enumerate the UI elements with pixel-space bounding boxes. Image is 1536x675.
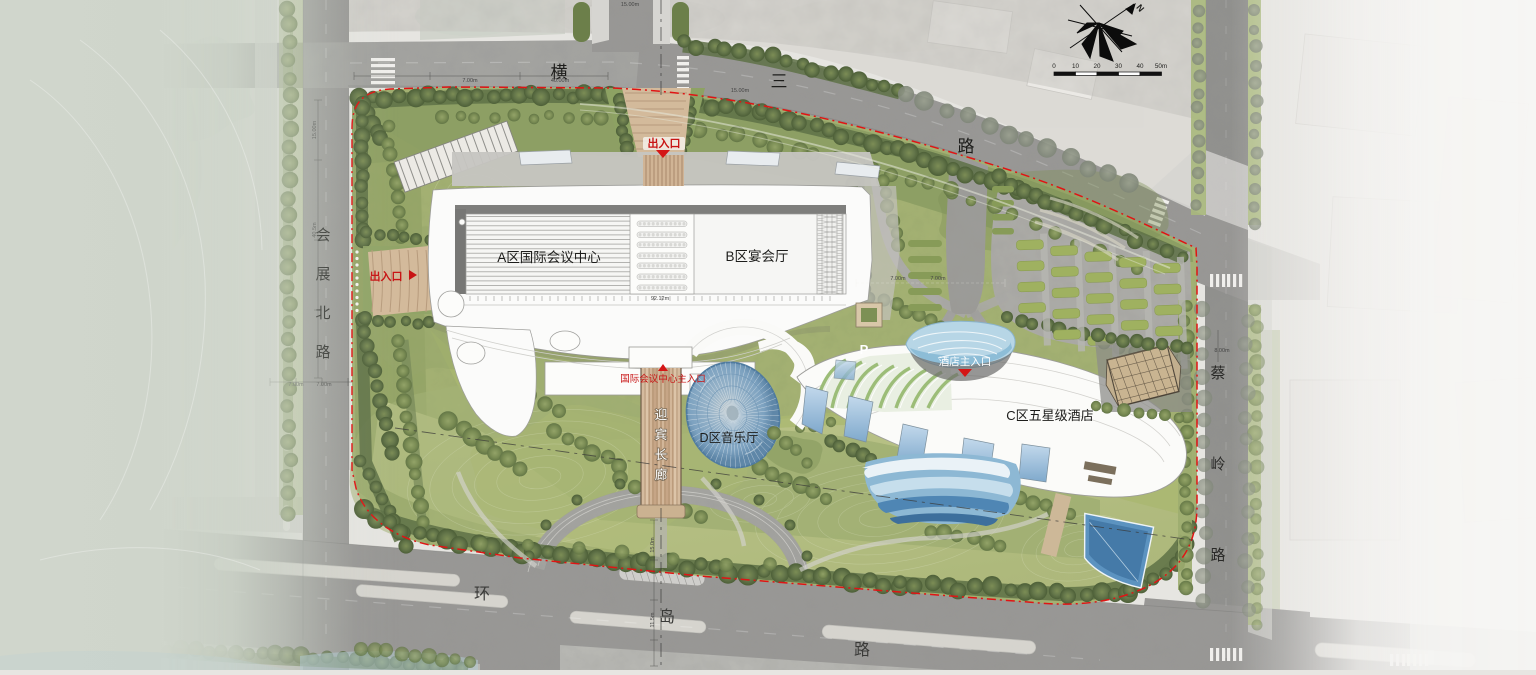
svg-text:蔡: 蔡 xyxy=(1210,365,1225,382)
svg-text:长: 长 xyxy=(655,448,668,462)
svg-text:迎: 迎 xyxy=(655,408,668,422)
svg-text:B区宴会厅: B区宴会厅 xyxy=(725,248,788,264)
svg-text:岛: 岛 xyxy=(659,608,675,626)
svg-text:50m: 50m xyxy=(1155,63,1167,70)
svg-text:15.00m: 15.00m xyxy=(621,2,640,8)
svg-text:8.00m: 8.00m xyxy=(1214,348,1230,354)
svg-text:路: 路 xyxy=(1210,547,1225,564)
svg-text:岭: 岭 xyxy=(1210,456,1225,473)
svg-text:40: 40 xyxy=(1136,63,1144,70)
svg-text:D区音乐厅: D区音乐厅 xyxy=(699,430,758,445)
svg-text:15.0m: 15.0m xyxy=(650,537,656,553)
svg-text:国际会议中心主入口: 国际会议中心主入口 xyxy=(620,373,706,385)
svg-text:15.00m: 15.00m xyxy=(731,88,750,94)
svg-text:出入口: 出入口 xyxy=(648,136,681,150)
svg-text:30: 30 xyxy=(1115,63,1123,70)
svg-text:C区五星级酒店: C区五星级酒店 xyxy=(1006,408,1093,423)
svg-text:P: P xyxy=(860,342,869,357)
svg-text:20: 20 xyxy=(1093,63,1101,70)
svg-text:7.00m: 7.00m xyxy=(930,276,946,282)
svg-text:酒店主入口: 酒店主入口 xyxy=(939,355,992,368)
svg-text:10: 10 xyxy=(1072,63,1080,70)
svg-text:7.00m: 7.00m xyxy=(890,276,906,282)
svg-text:环: 环 xyxy=(474,586,490,603)
svg-text:40.00m: 40.00m xyxy=(551,78,570,84)
svg-text:92.12m: 92.12m xyxy=(651,296,670,302)
svg-text:0: 0 xyxy=(1052,63,1056,70)
svg-text:廊: 廊 xyxy=(655,467,668,482)
svg-text:7.00m: 7.00m xyxy=(462,78,478,84)
svg-text:宾: 宾 xyxy=(655,427,668,442)
svg-text:路: 路 xyxy=(958,137,975,156)
svg-text:11.5m: 11.5m xyxy=(650,612,656,627)
svg-text:A区国际会议中心: A区国际会议中心 xyxy=(497,250,601,265)
svg-text:路: 路 xyxy=(854,641,870,659)
svg-text:三: 三 xyxy=(771,72,788,91)
